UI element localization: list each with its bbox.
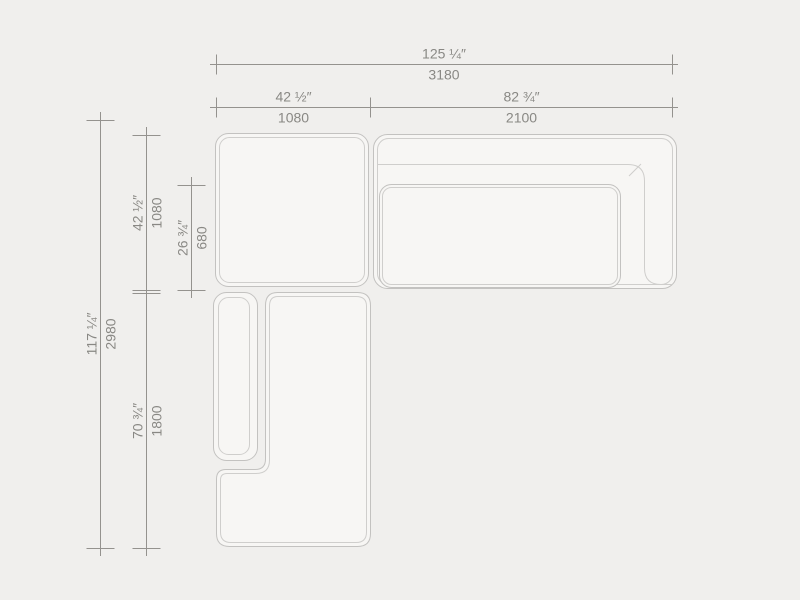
dimension-drawing-page: 125 ¼″ 3180 42 ½″ 1080 82 ¾″ 2100 117 ¼″… bbox=[0, 0, 800, 600]
chaise-armrest-outline bbox=[214, 293, 258, 461]
dim-label-inches: 26 ¾″ bbox=[175, 220, 191, 256]
dim-label-mm: 2100 bbox=[506, 110, 537, 126]
dim-label-inches: 70 ¾″ bbox=[130, 403, 146, 439]
dim-label-inches: 42 ½″ bbox=[275, 89, 311, 105]
pouf-module bbox=[216, 134, 369, 287]
dim-label-mm: 680 bbox=[194, 226, 210, 250]
dim-label-mm: 1800 bbox=[149, 405, 165, 436]
sofa-dimension-diagram: 125 ¼″ 3180 42 ½″ 1080 82 ¾″ 2100 117 ¼″… bbox=[0, 0, 800, 600]
pouf-outline bbox=[216, 134, 369, 287]
dim-label-mm: 1080 bbox=[278, 110, 309, 126]
dim-label-mm: 1080 bbox=[149, 197, 165, 228]
dim-label-inches: 117 ¼″ bbox=[84, 313, 100, 356]
background bbox=[0, 0, 800, 600]
dim-label-inches: 82 ¾″ bbox=[503, 89, 539, 105]
sofa-seat-cushion bbox=[380, 185, 621, 288]
dim-label-inches: 42 ½″ bbox=[130, 195, 146, 231]
chaise-module bbox=[214, 293, 371, 547]
sofa-module bbox=[374, 135, 677, 289]
dim-label-mm: 2980 bbox=[103, 318, 119, 349]
dim-label-inches: 125 ¼″ bbox=[422, 46, 466, 62]
dim-label-mm: 3180 bbox=[428, 67, 459, 83]
